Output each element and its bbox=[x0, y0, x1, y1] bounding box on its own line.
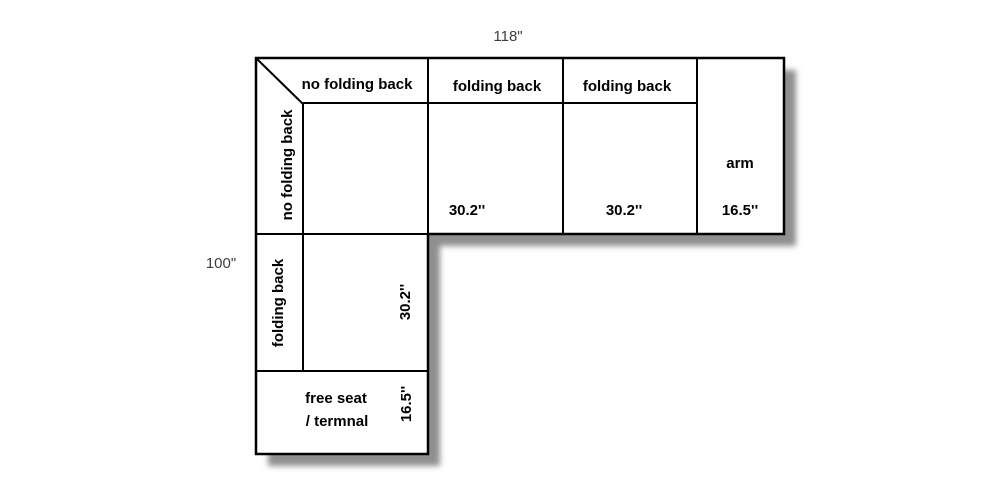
seat1-width-label: 30.2'' bbox=[449, 202, 485, 219]
end-seat-label-line1: free seat bbox=[305, 390, 367, 407]
header-no-folding-back: no folding back bbox=[302, 76, 413, 93]
arm-width-label: 16.5'' bbox=[722, 202, 758, 219]
seat2-width-label: 30.2'' bbox=[606, 202, 642, 219]
end-seat-width-label: 16.5'' bbox=[398, 386, 415, 422]
left-seat-width-label: 30.2'' bbox=[397, 284, 414, 320]
header-folding-back-1: folding back bbox=[453, 78, 542, 95]
header-folding-back-2: folding back bbox=[583, 78, 672, 95]
left-back-rail-label-top: no folding back bbox=[279, 109, 296, 220]
overall-width-label: 118" bbox=[493, 28, 522, 45]
diagram-svg: 118" 100" no folding back folding back f… bbox=[0, 0, 1000, 500]
sofa-dimension-diagram: 118" 100" no folding back folding back f… bbox=[0, 0, 1000, 500]
overall-height-label: 100" bbox=[206, 255, 236, 272]
arm-label: arm bbox=[726, 155, 754, 172]
left-back-rail-label-bottom: folding back bbox=[270, 258, 287, 347]
end-seat-label-line2: / termnal bbox=[306, 413, 369, 430]
